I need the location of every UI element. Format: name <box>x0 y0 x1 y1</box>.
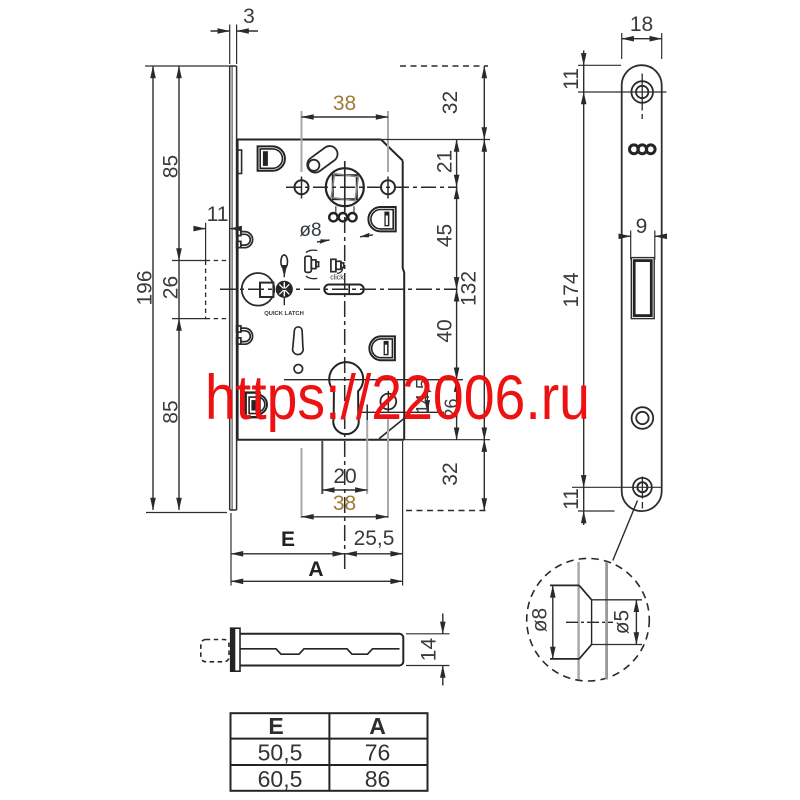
svg-text:45: 45 <box>433 224 456 247</box>
svg-text:86: 86 <box>365 766 391 792</box>
svg-text:A: A <box>369 713 386 739</box>
svg-text:click: click <box>330 275 344 282</box>
svg-text:85: 85 <box>160 155 183 178</box>
svg-text:20: 20 <box>333 465 356 488</box>
svg-text:E: E <box>268 713 283 739</box>
svg-text:E: E <box>281 528 295 551</box>
svg-text:11: 11 <box>560 68 583 90</box>
svg-text:38: 38 <box>333 492 356 515</box>
svg-text:196: 196 <box>134 270 157 305</box>
svg-text:25,5: 25,5 <box>354 527 395 550</box>
svg-text:32: 32 <box>439 462 462 485</box>
svg-text:ø5: ø5 <box>611 610 634 635</box>
svg-text:ø8: ø8 <box>299 220 321 241</box>
svg-text:174: 174 <box>560 272 583 307</box>
svg-text:40: 40 <box>433 319 456 342</box>
svg-text:QUICK LATCH: QUICK LATCH <box>264 311 304 317</box>
svg-text:21: 21 <box>433 150 456 173</box>
svg-text:14: 14 <box>418 638 441 662</box>
svg-text:11: 11 <box>560 488 583 510</box>
svg-text:3: 3 <box>243 5 255 28</box>
svg-text:60,5: 60,5 <box>258 766 303 792</box>
svg-text:85: 85 <box>160 400 183 423</box>
svg-text:18: 18 <box>630 13 653 36</box>
svg-text:32: 32 <box>439 91 462 114</box>
svg-text:9: 9 <box>636 215 648 238</box>
svg-text:https://22006.ru: https://22006.ru <box>205 363 590 433</box>
svg-text:50,5: 50,5 <box>258 740 303 766</box>
svg-text:11: 11 <box>207 203 229 226</box>
svg-text:26: 26 <box>160 276 183 299</box>
svg-text:76: 76 <box>365 740 391 766</box>
svg-text:132: 132 <box>458 271 481 306</box>
svg-text:ø8: ø8 <box>529 608 552 633</box>
svg-text:A: A <box>308 558 323 581</box>
svg-text:38: 38 <box>333 92 356 115</box>
